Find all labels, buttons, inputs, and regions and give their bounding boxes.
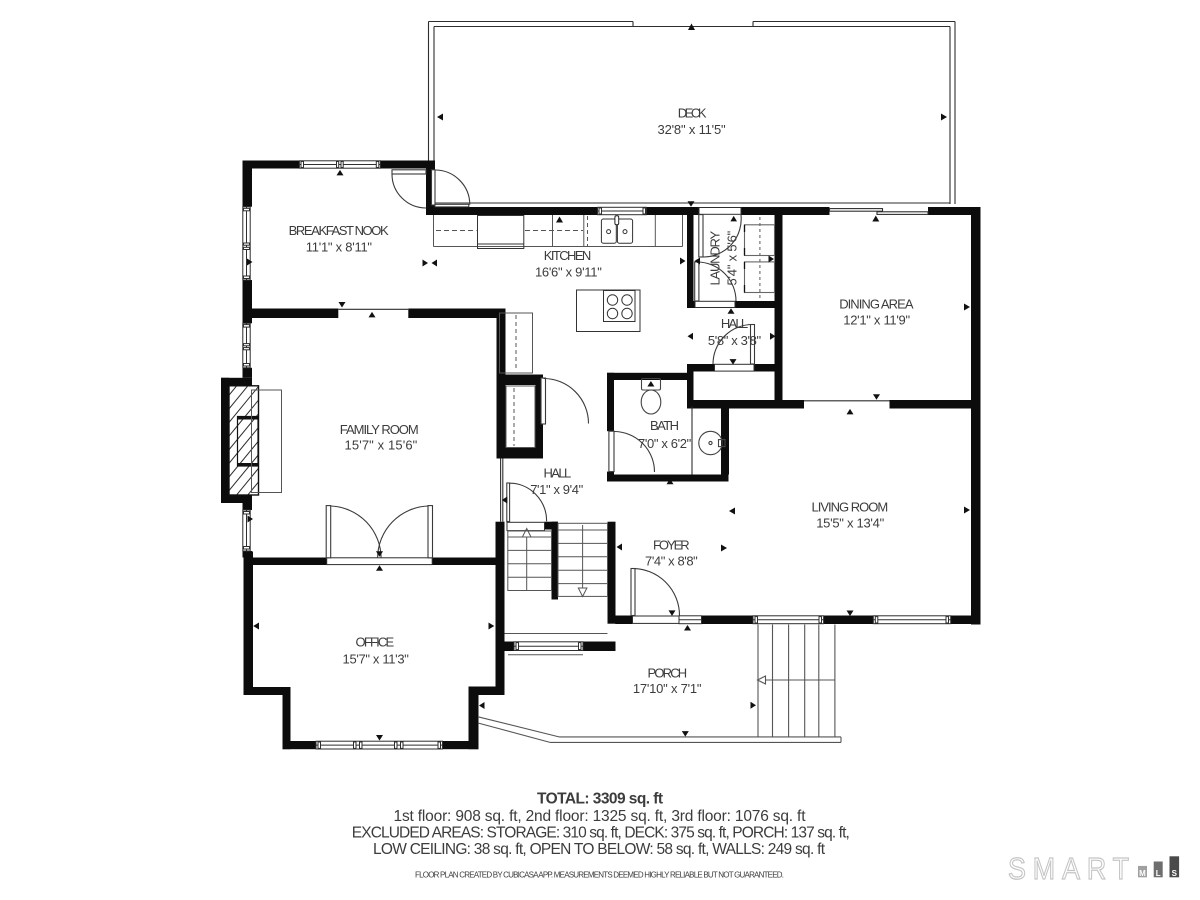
svg-text:HALL: HALL (544, 466, 572, 481)
svg-text:DINING AREA: DINING AREA (839, 297, 914, 312)
svg-text:S: S (1172, 869, 1178, 878)
svg-text:7'1" x 9'4": 7'1" x 9'4" (530, 482, 583, 497)
svg-text:32'8" x 11'5": 32'8" x 11'5" (658, 122, 726, 137)
svg-text:BATH: BATH (650, 418, 679, 433)
svg-text:M: M (1139, 869, 1146, 878)
svg-text:LAUNDRY: LAUNDRY (708, 230, 723, 285)
svg-text:15'7" x 11'3": 15'7" x 11'3" (343, 652, 410, 667)
svg-text:15'5" x 13'4": 15'5" x 13'4" (816, 516, 884, 531)
svg-text:7'0" x 6'2": 7'0" x 6'2" (638, 436, 692, 451)
svg-text:PORCH: PORCH (648, 665, 688, 680)
svg-text:L: L (1156, 869, 1161, 878)
svg-text:15'7" x 15'6": 15'7" x 15'6" (345, 438, 418, 453)
svg-text:TOTAL: 3309 sq. ft: TOTAL: 3309 sq. ft (537, 791, 663, 808)
svg-text:KITCHEN: KITCHEN (544, 248, 592, 263)
svg-text:12'1" x 11'9": 12'1" x 11'9" (843, 312, 910, 327)
svg-text:1st floor: 908 sq. ft, 2nd flo: 1st floor: 908 sq. ft, 2nd floor: 1325 s… (394, 808, 807, 825)
svg-text:SMART: SMART (1008, 851, 1136, 886)
svg-text:OFFICE: OFFICE (356, 635, 395, 650)
svg-text:7'4" x 8'8": 7'4" x 8'8" (645, 554, 698, 569)
svg-text:FLOOR PLAN CREATED BY CUBICASA: FLOOR PLAN CREATED BY CUBICASA APP. MEAS… (415, 871, 784, 880)
svg-text:HALL: HALL (721, 316, 749, 331)
svg-text:LIVING ROOM: LIVING ROOM (812, 499, 889, 514)
svg-text:DECK: DECK (678, 106, 707, 121)
svg-text:BREAKFAST NOOK: BREAKFAST NOOK (289, 223, 389, 238)
svg-text:FOYER: FOYER (653, 538, 690, 553)
svg-text:5'4" x 5'6": 5'4" x 5'6" (725, 230, 740, 285)
svg-text:FAMILY ROOM: FAMILY ROOM (340, 422, 419, 437)
svg-text:16'6" x 9'11": 16'6" x 9'11" (535, 265, 602, 280)
svg-text:17'10" x 7'1": 17'10" x 7'1" (633, 681, 702, 696)
svg-text:EXCLUDED AREAS: STORAGE: 310 s: EXCLUDED AREAS: STORAGE: 310 sq. ft, DEC… (352, 825, 850, 842)
svg-text:11'1" x 8'11": 11'1" x 8'11" (306, 239, 373, 254)
svg-text:LOW CEILING: 38 sq. ft, OPEN T: LOW CEILING: 38 sq. ft, OPEN TO BELOW: 5… (373, 841, 826, 858)
svg-text:5'8" x 3'8": 5'8" x 3'8" (708, 333, 762, 348)
